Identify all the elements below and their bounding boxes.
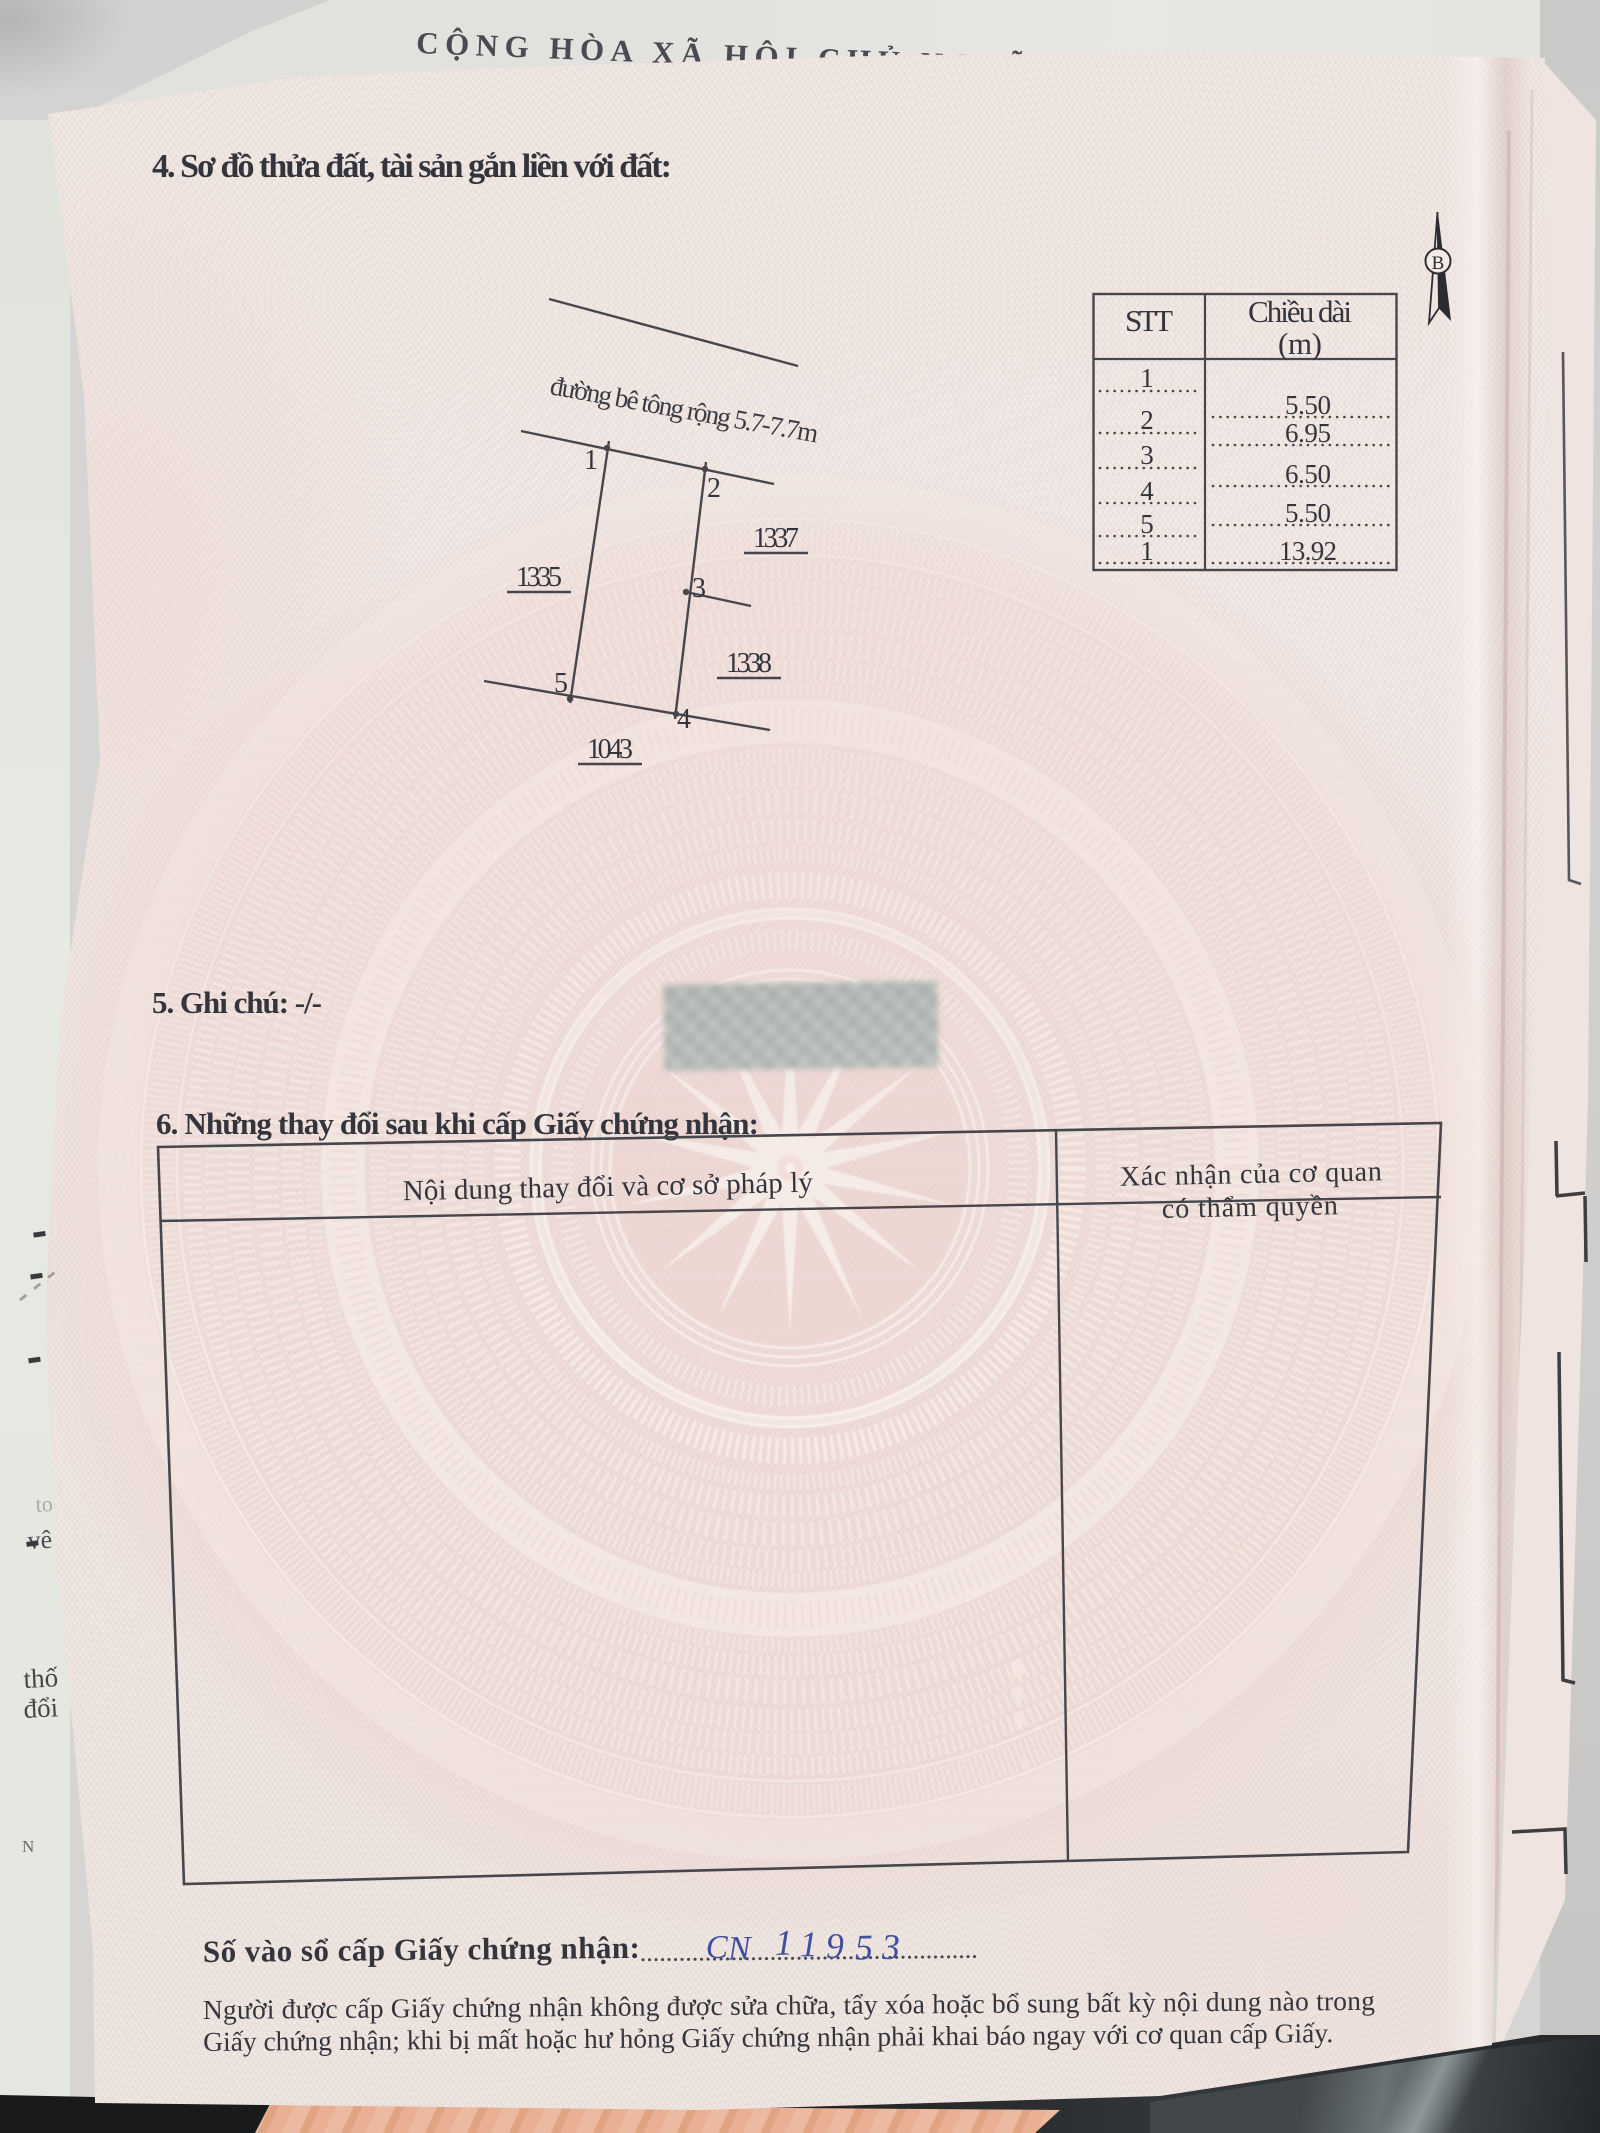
svg-text:đổi: đổi [23,1692,59,1724]
svg-text:vê: vê [27,1525,53,1555]
svg-text:to: to [35,1491,53,1517]
svg-text:N: N [22,1837,34,1856]
svg-text:thố: thố [23,1662,60,1694]
